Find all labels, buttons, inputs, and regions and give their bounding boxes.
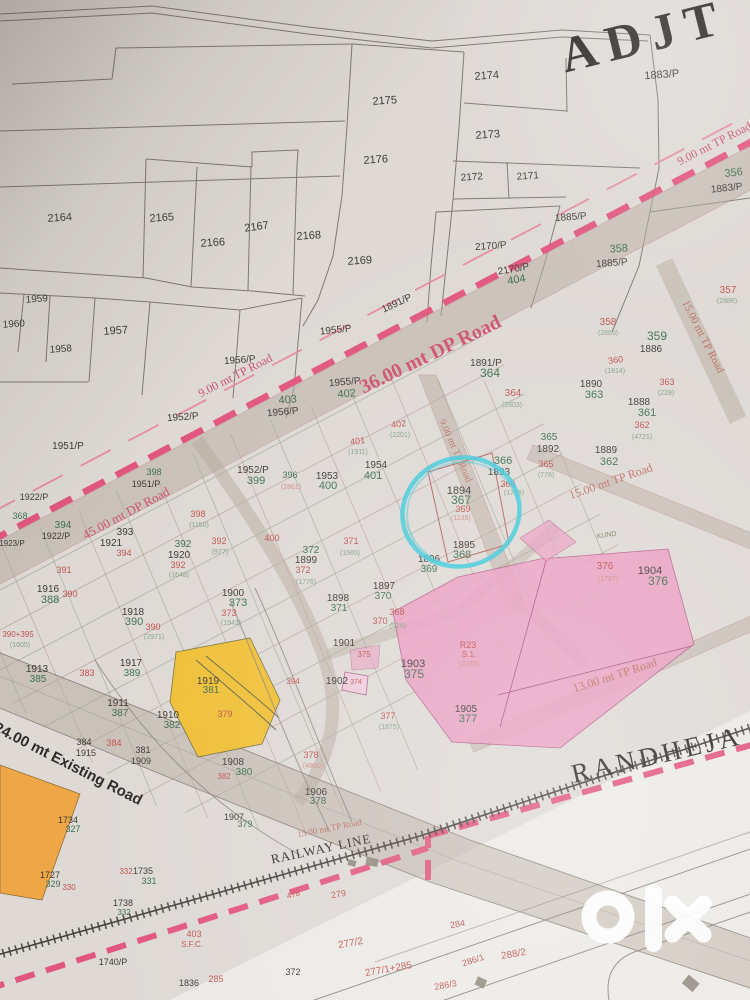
photo-glow-overlay-top [0,0,750,1000]
olx-bar-glyph [645,884,662,952]
tp-scheme-map-photo: 2164216521662167216821692175217621742173… [0,0,750,1000]
tp-scheme-map: 2164216521662167216821692175217621742173… [0,0,750,1000]
